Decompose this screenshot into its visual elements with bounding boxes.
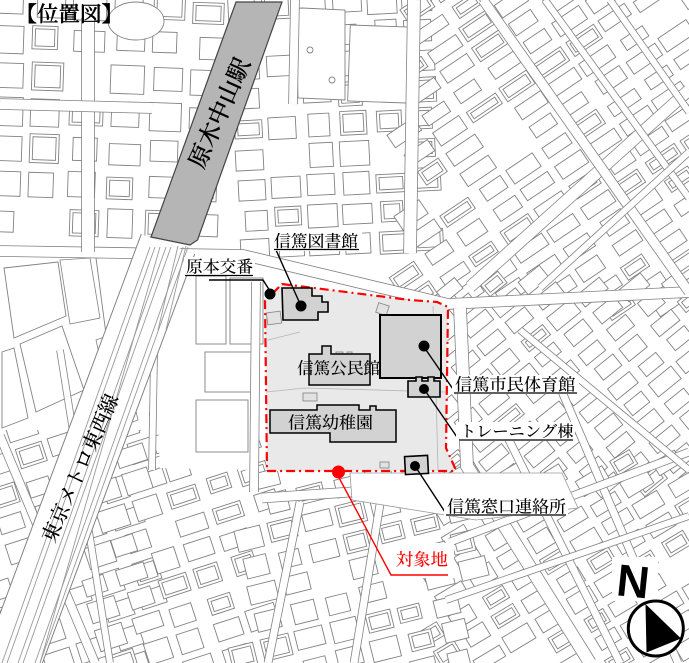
svg-text:N: N xyxy=(614,554,652,608)
